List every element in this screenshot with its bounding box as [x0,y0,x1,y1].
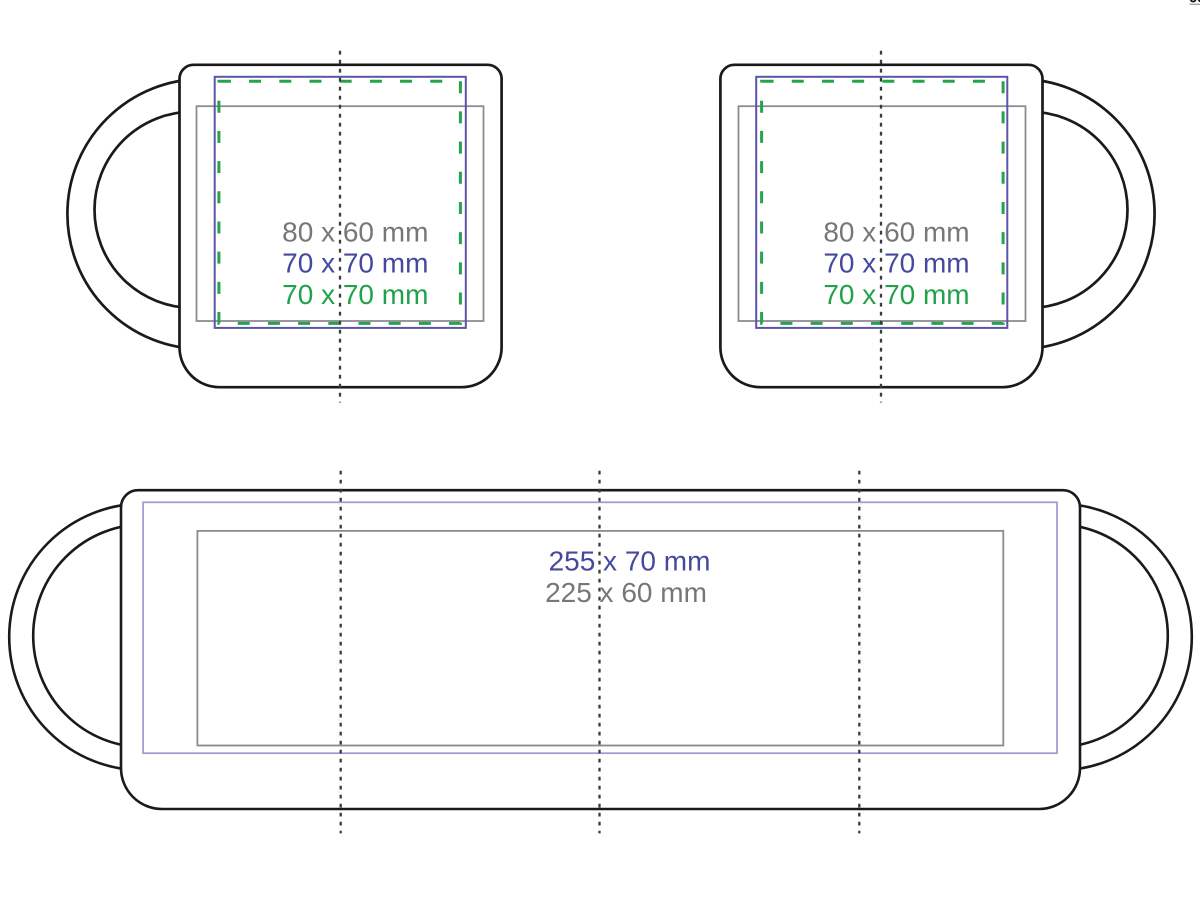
svg-text:225 x 60 mm: 225 x 60 mm [545,577,707,608]
svg-text:70 x 70 mm: 70 x 70 mm [282,279,428,310]
svg-text:80 x 60 mm: 80 x 60 mm [282,217,428,248]
svg-text:255 x 70 mm: 255 x 70 mm [549,545,711,576]
svg-text:80 x 60 mm: 80 x 60 mm [823,217,969,248]
svg-text:70 x 70 mm: 70 x 70 mm [823,279,969,310]
svg-text:70 x 70 mm: 70 x 70 mm [823,247,969,278]
svg-text:70 x 70 mm: 70 x 70 mm [282,247,428,278]
